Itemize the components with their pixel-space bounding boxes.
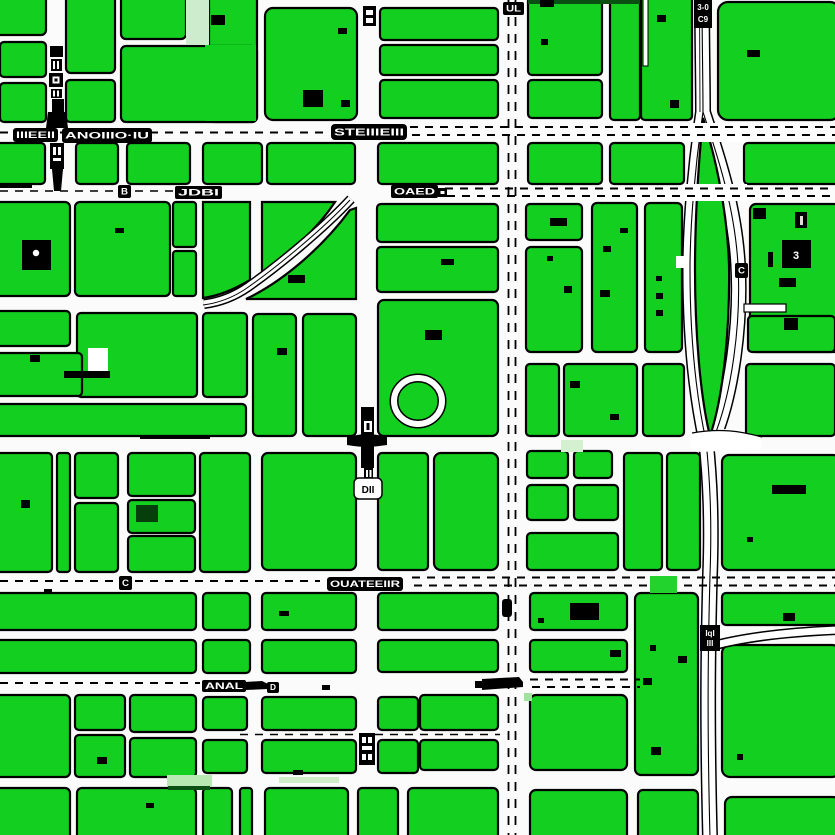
- svg-text:JDBI: JDBI: [178, 188, 219, 198]
- svg-text:D: D: [270, 683, 276, 692]
- svg-text:3: 3: [793, 250, 799, 262]
- svg-text:ANOIIIO·IU: ANOIIIO·IU: [65, 131, 149, 142]
- svg-text:OUATEEIIR: OUATEEIIR: [330, 579, 400, 590]
- svg-text:ANAL: ANAL: [205, 681, 244, 691]
- svg-text:IIIEEII: IIIEEII: [16, 130, 55, 140]
- svg-text:DII: DII: [362, 485, 375, 496]
- svg-text:B: B: [121, 187, 129, 197]
- svg-text:C: C: [122, 578, 130, 588]
- svg-text:OAED: OAED: [394, 187, 435, 198]
- svg-text:STEIIIEIII: STEIIIEIII: [334, 127, 404, 138]
- svg-text:3-0: 3-0: [697, 3, 709, 12]
- svg-text:III: III: [707, 639, 714, 648]
- svg-text:IqI: IqI: [705, 629, 714, 638]
- svg-text:C: C: [738, 266, 746, 276]
- svg-text:C9: C9: [698, 15, 709, 24]
- svg-text:UL: UL: [506, 4, 522, 14]
